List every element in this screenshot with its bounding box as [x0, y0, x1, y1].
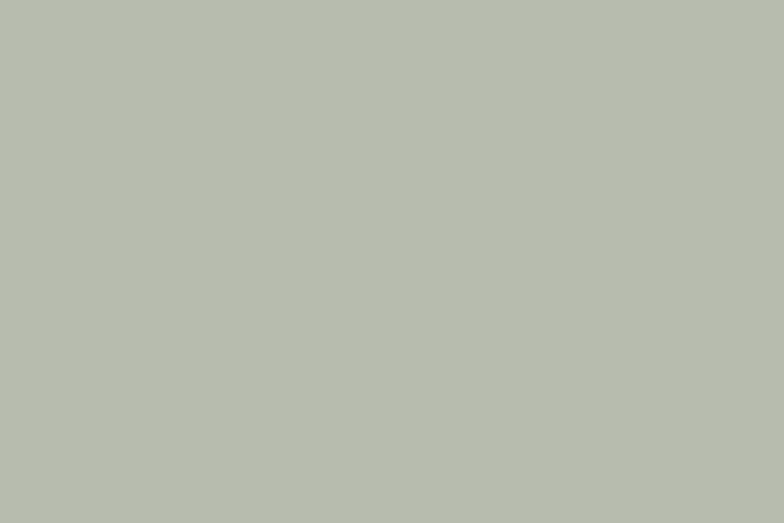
aerial-masterplan-render [0, 0, 784, 523]
aerial-render-canvas [0, 0, 784, 523]
